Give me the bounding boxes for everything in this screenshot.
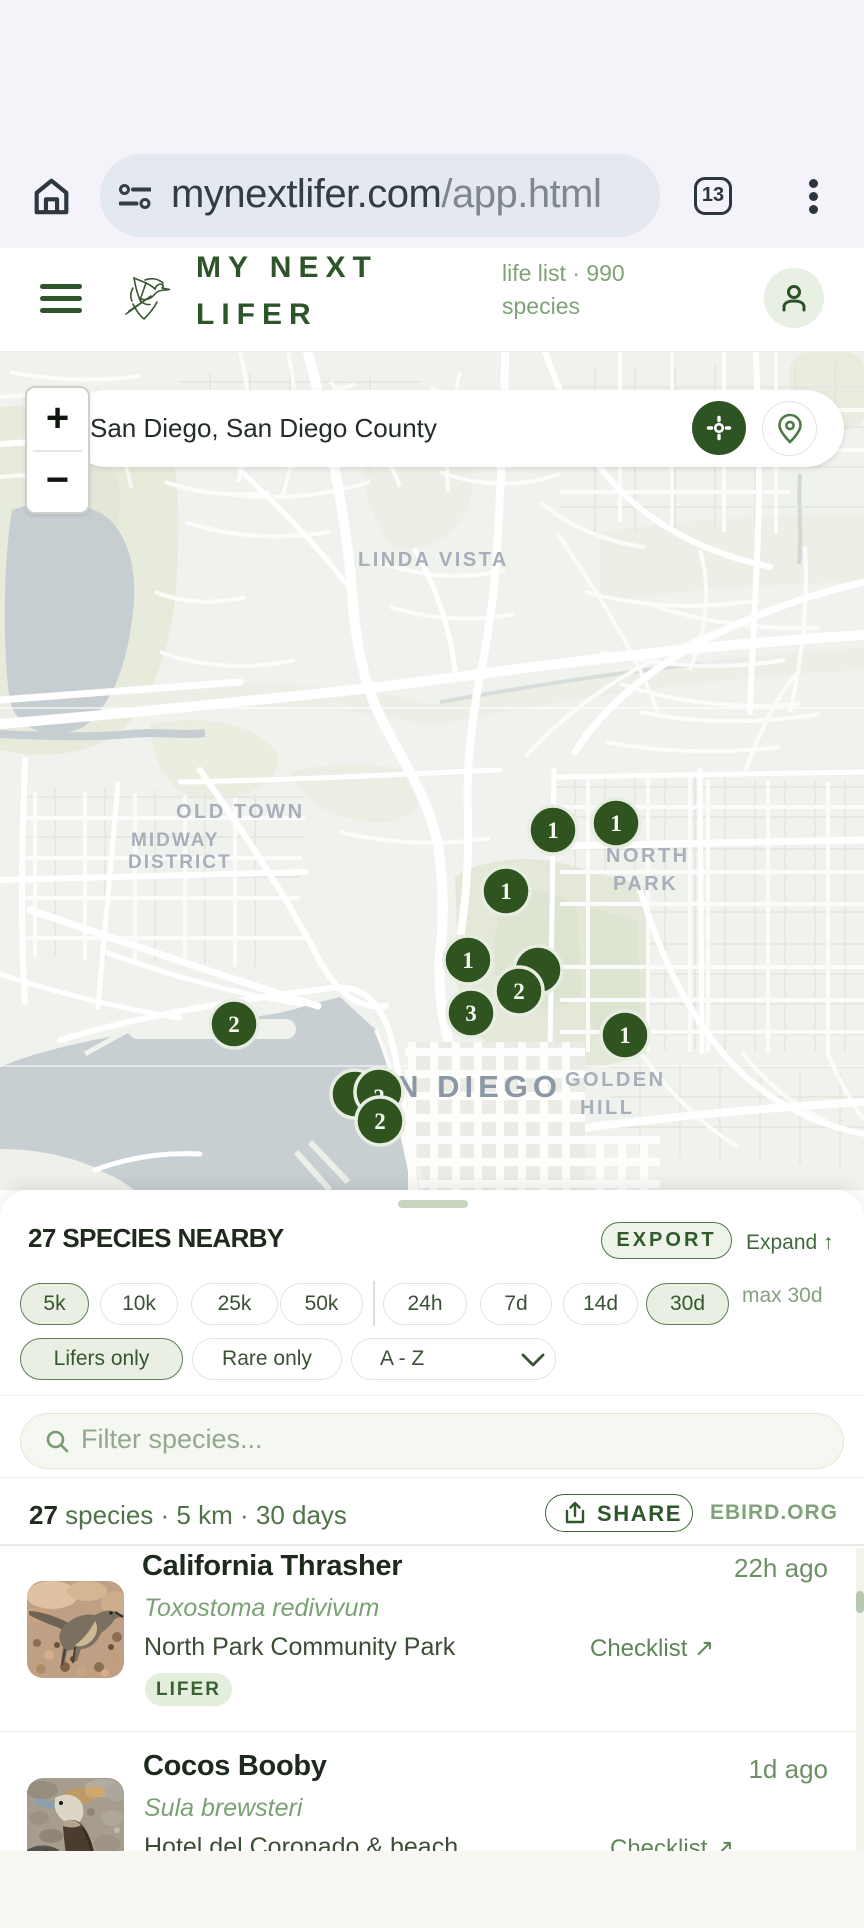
svg-text:1: 1 bbox=[500, 879, 512, 904]
svg-text:DISTRICT: DISTRICT bbox=[128, 852, 232, 873]
svg-text:PARK: PARK bbox=[613, 873, 678, 895]
svg-text:1: 1 bbox=[619, 1023, 631, 1048]
svg-text:GOLDEN: GOLDEN bbox=[565, 1069, 666, 1091]
svg-text:2: 2 bbox=[513, 979, 525, 1004]
svg-text:3: 3 bbox=[465, 1001, 477, 1026]
svg-text:1: 1 bbox=[610, 811, 622, 836]
svg-text:2: 2 bbox=[374, 1109, 386, 1134]
svg-text:LINDA VISTA: LINDA VISTA bbox=[358, 549, 509, 571]
svg-text:2: 2 bbox=[228, 1012, 240, 1037]
svg-text:1: 1 bbox=[462, 948, 474, 973]
svg-text:1: 1 bbox=[547, 818, 559, 843]
svg-text:MIDWAY: MIDWAY bbox=[131, 830, 219, 851]
svg-text:HILL: HILL bbox=[580, 1097, 634, 1119]
svg-text:OLD TOWN: OLD TOWN bbox=[176, 801, 305, 823]
